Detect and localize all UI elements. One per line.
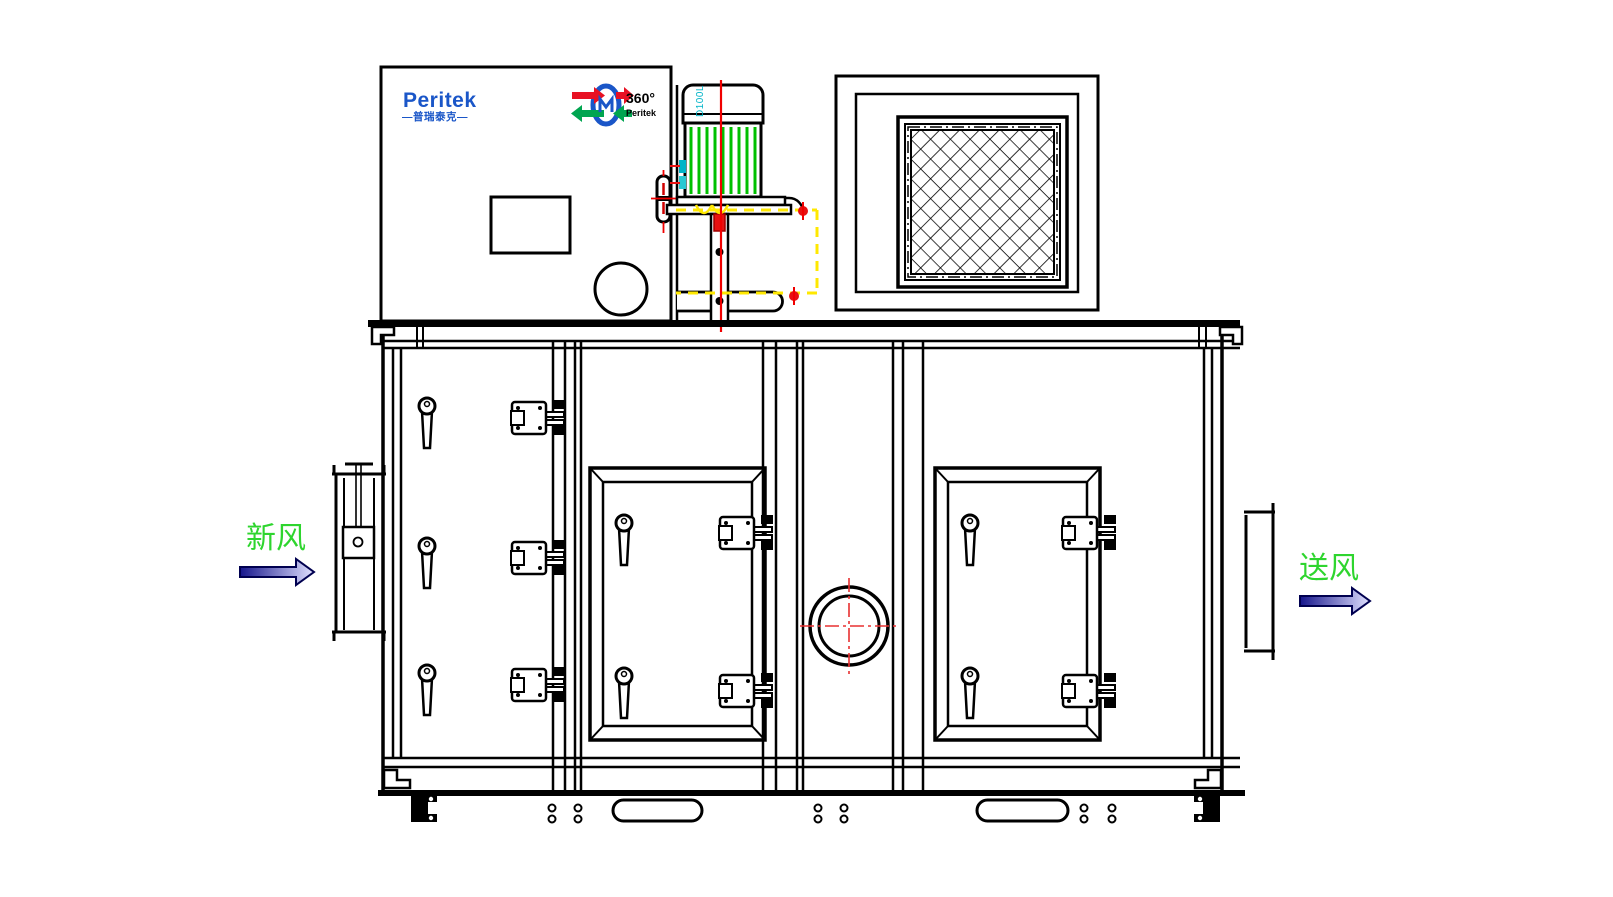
- filter-mesh: [911, 130, 1054, 274]
- motor-mount: [667, 197, 803, 322]
- panel-handle: [419, 665, 435, 715]
- panel-handle: [419, 538, 435, 588]
- panel-latch: [511, 400, 565, 435]
- peritek-logo-text: Peritek: [403, 89, 477, 112]
- rotor-angle-text: 360°: [626, 90, 655, 106]
- drawing-canvas: Peritek —普瑞泰克— 360° Peritek D100L: [0, 0, 1613, 897]
- motor-terminal: [679, 160, 686, 173]
- door-handle: [616, 668, 632, 718]
- bottom-rail: [384, 758, 1240, 767]
- sight-glass: [800, 578, 898, 674]
- door-handle: [616, 515, 632, 565]
- drive-motor: D100L: [670, 85, 763, 197]
- left-fixed-panel: [419, 398, 565, 715]
- fresh-air-arrow-icon: [240, 559, 314, 585]
- base-frame-line: [378, 790, 1245, 796]
- door-latch: [719, 673, 773, 708]
- cad-drawing: Peritek —普瑞泰克— 360° Peritek D100L: [0, 0, 1613, 897]
- door-latch: [1062, 673, 1116, 708]
- panel-dividers: [553, 341, 923, 790]
- top-rail: [384, 327, 1240, 348]
- panel-handle: [419, 398, 435, 448]
- cabinet-body: [372, 327, 1242, 790]
- door-latch: [1062, 515, 1116, 550]
- supply-air-label: 送风: [1299, 552, 1359, 585]
- panel-latch: [511, 667, 565, 702]
- cabinet-roof: [368, 320, 1240, 327]
- rotor-logo: 360° Peritek: [571, 86, 657, 124]
- peritek-logo: Peritek —普瑞泰克—: [402, 89, 477, 123]
- supply-air-arrow-icon: [1300, 588, 1370, 614]
- rotor-brand-text: Peritek: [626, 108, 657, 118]
- door-handle: [962, 668, 978, 718]
- sight-glass-centerlines: [800, 578, 898, 674]
- damper-actuator-box: [343, 527, 374, 558]
- mount-guide-yellow: [676, 205, 817, 293]
- fresh-air-label: 新风: [246, 522, 306, 555]
- inspection-circle: [595, 263, 647, 315]
- fresh-air-inlet-duct: [332, 464, 386, 641]
- panel-latch: [511, 540, 565, 575]
- lifting-brackets: [372, 327, 1242, 788]
- door-handle: [962, 515, 978, 565]
- peritek-logo-subtext: —普瑞泰克—: [402, 110, 468, 123]
- electrical-box: [491, 197, 570, 253]
- supply-air-outlet-duct: [1244, 503, 1275, 660]
- motor-model-text: D100L: [695, 85, 706, 117]
- return-air-filter: [836, 76, 1098, 310]
- mount-bolts-red: [789, 202, 808, 305]
- door-latch: [719, 515, 773, 550]
